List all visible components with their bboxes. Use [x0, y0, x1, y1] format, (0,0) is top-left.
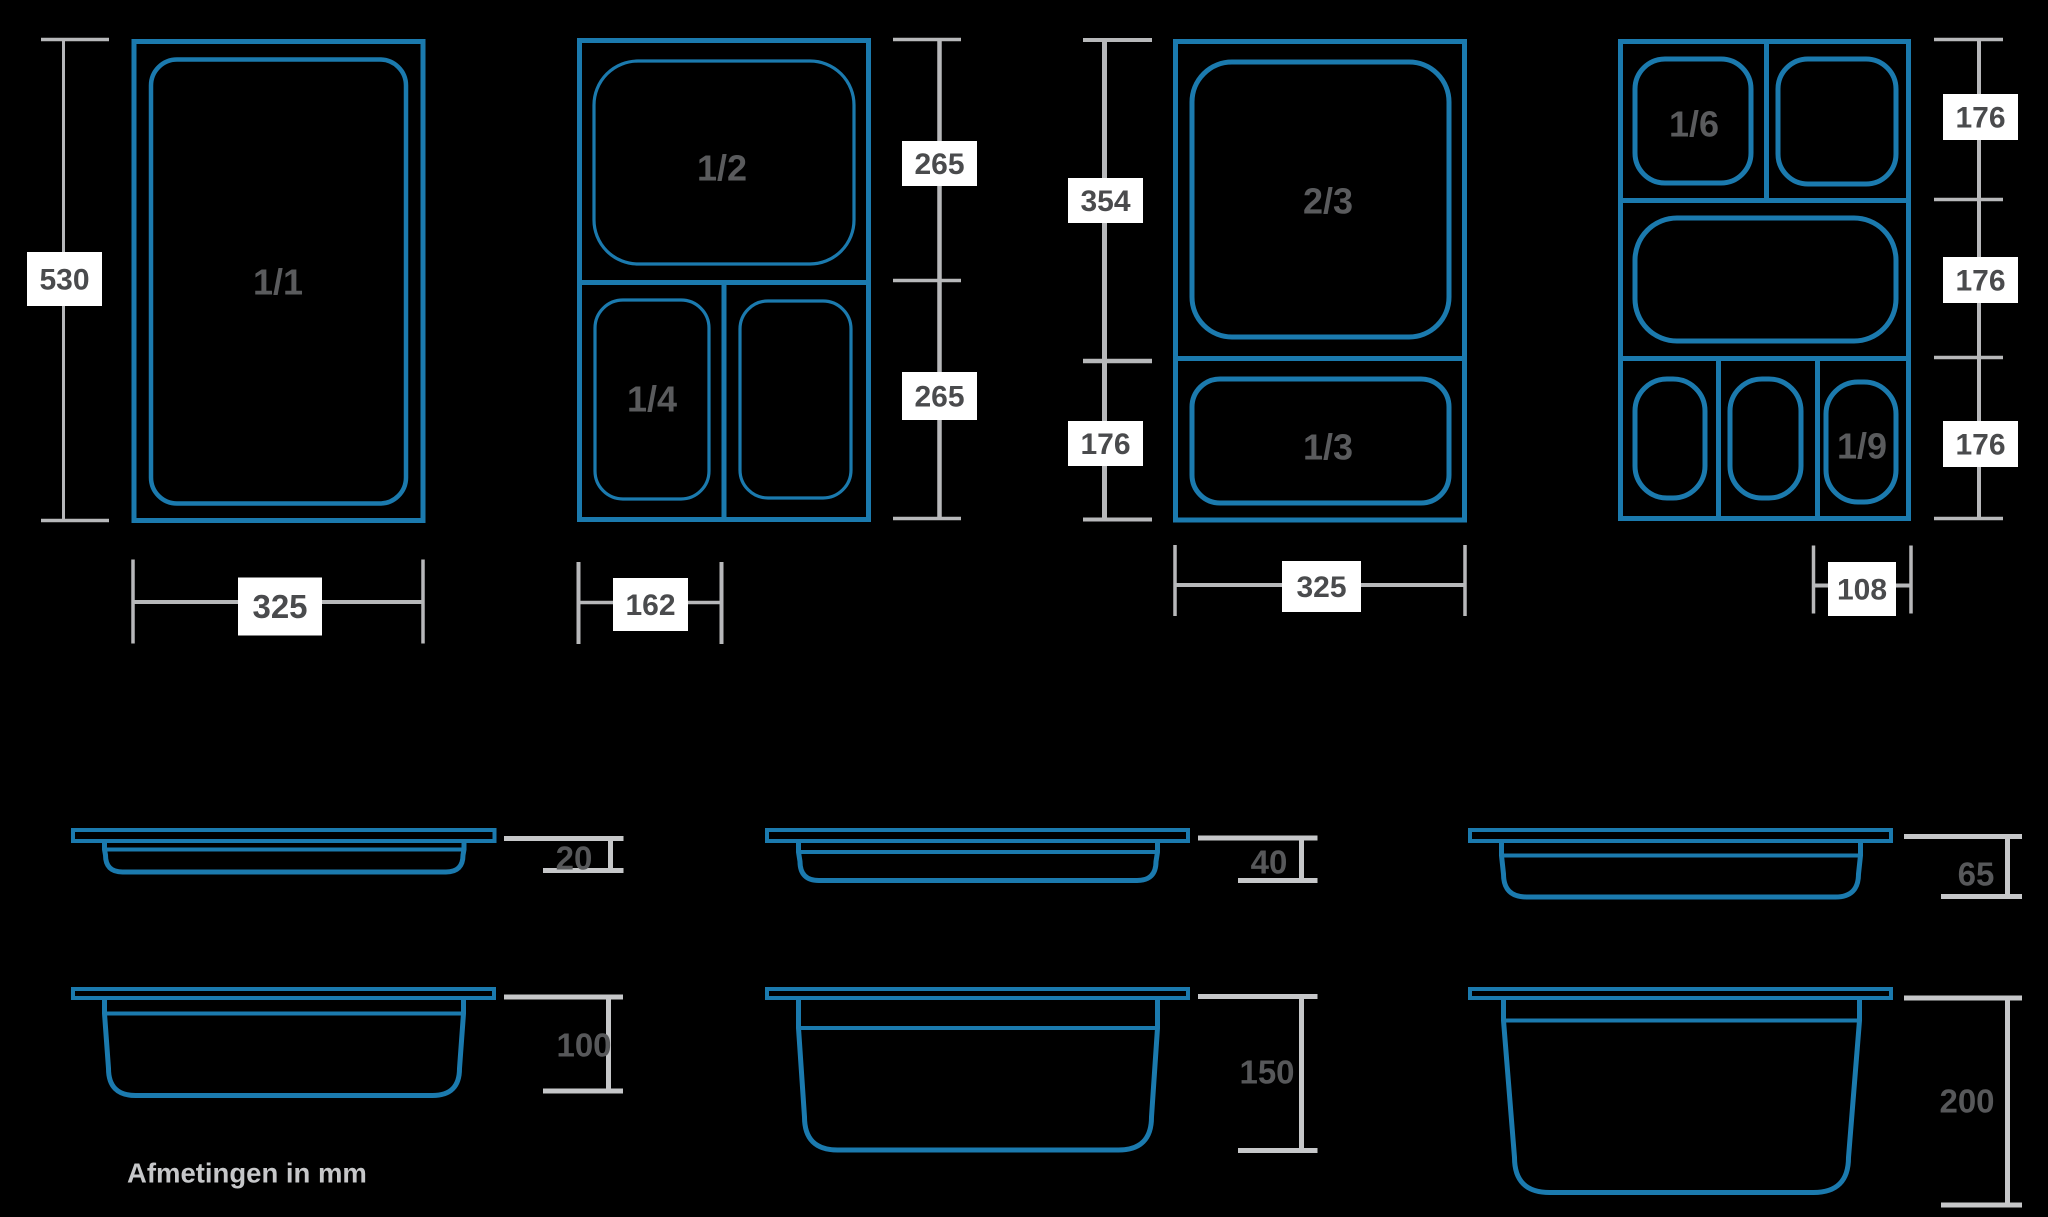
svg-text:162: 162 — [625, 589, 675, 622]
svg-text:325: 325 — [252, 588, 307, 625]
svg-text:176: 176 — [1080, 428, 1130, 461]
svg-text:Afmetingen in mm: Afmetingen in mm — [127, 1158, 367, 1189]
svg-text:176: 176 — [1955, 429, 2005, 462]
svg-text:20: 20 — [556, 840, 593, 877]
svg-text:325: 325 — [1296, 571, 1346, 604]
svg-text:150: 150 — [1239, 1054, 1294, 1091]
svg-text:176: 176 — [1955, 102, 2005, 135]
svg-text:265: 265 — [914, 381, 964, 414]
svg-text:354: 354 — [1080, 185, 1130, 218]
svg-text:530: 530 — [39, 264, 89, 297]
svg-text:65: 65 — [1958, 856, 1995, 893]
svg-text:1/1: 1/1 — [253, 262, 303, 303]
svg-text:108: 108 — [1837, 574, 1887, 607]
svg-text:1/2: 1/2 — [697, 148, 747, 189]
svg-text:200: 200 — [1939, 1083, 1994, 1120]
svg-text:2/3: 2/3 — [1303, 181, 1353, 222]
svg-text:100: 100 — [556, 1027, 611, 1064]
svg-text:176: 176 — [1955, 265, 2005, 298]
svg-text:1/4: 1/4 — [627, 379, 677, 420]
svg-text:265: 265 — [914, 148, 964, 181]
svg-text:1/6: 1/6 — [1669, 104, 1719, 145]
svg-text:40: 40 — [1251, 844, 1288, 881]
svg-text:1/3: 1/3 — [1303, 427, 1353, 468]
svg-text:1/9: 1/9 — [1837, 426, 1887, 467]
